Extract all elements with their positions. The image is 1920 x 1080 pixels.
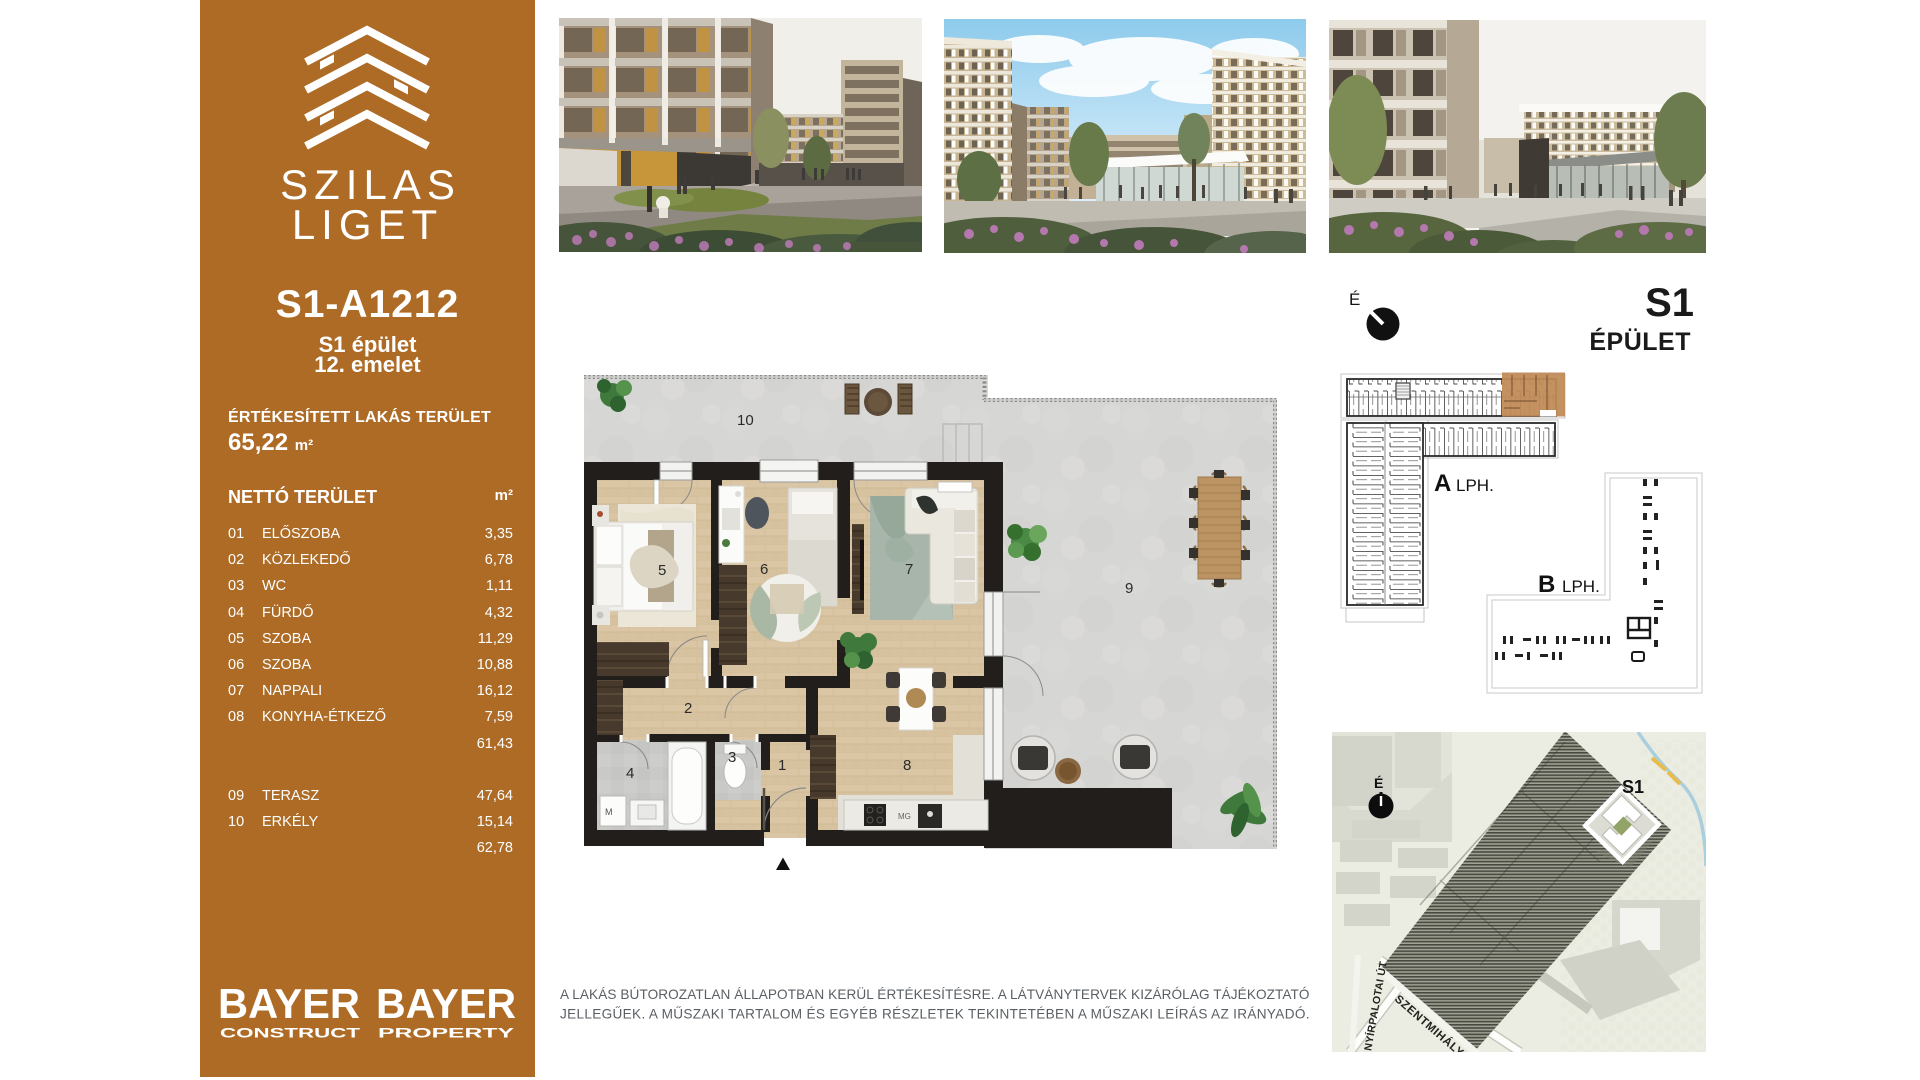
svg-text:M: M <box>605 807 613 817</box>
svg-text:9: 9 <box>1125 580 1133 597</box>
svg-text:A: A <box>1434 470 1451 497</box>
svg-text:S1: S1 <box>1622 777 1644 797</box>
svg-text:2: 2 <box>684 700 692 717</box>
svg-text:LPH.: LPH. <box>1456 476 1494 495</box>
svg-text:PROPERTY: PROPERTY <box>378 1026 514 1041</box>
svg-text:10: 10 <box>737 412 754 429</box>
svg-text:A LAKÁS BÚTOROZATLAN ÁLLAPOTBA: A LAKÁS BÚTOROZATLAN ÁLLAPOTBAN KERÜL ÉR… <box>560 987 1310 1002</box>
svg-text:BAYER: BAYER <box>218 984 360 1027</box>
svg-text:B: B <box>1538 571 1555 598</box>
svg-text:MG: MG <box>898 812 911 821</box>
svg-text:BAYER: BAYER <box>376 984 516 1027</box>
svg-text:7: 7 <box>905 561 913 578</box>
svg-text:É: É <box>1374 775 1383 791</box>
svg-text:CONSTRUCT: CONSTRUCT <box>220 1026 361 1041</box>
svg-text:1: 1 <box>778 757 786 774</box>
svg-text:8: 8 <box>903 757 911 774</box>
svg-text:4: 4 <box>626 765 634 782</box>
svg-text:JELLEGŰEK. A MŰSZAKI TARTALOM: JELLEGŰEK. A MŰSZAKI TARTALOM ÉS EGYÉB R… <box>560 1007 1310 1022</box>
svg-text:6: 6 <box>760 561 768 578</box>
svg-text:5: 5 <box>658 562 666 579</box>
svg-text:3: 3 <box>728 749 736 766</box>
svg-text:LPH.: LPH. <box>1562 577 1600 596</box>
